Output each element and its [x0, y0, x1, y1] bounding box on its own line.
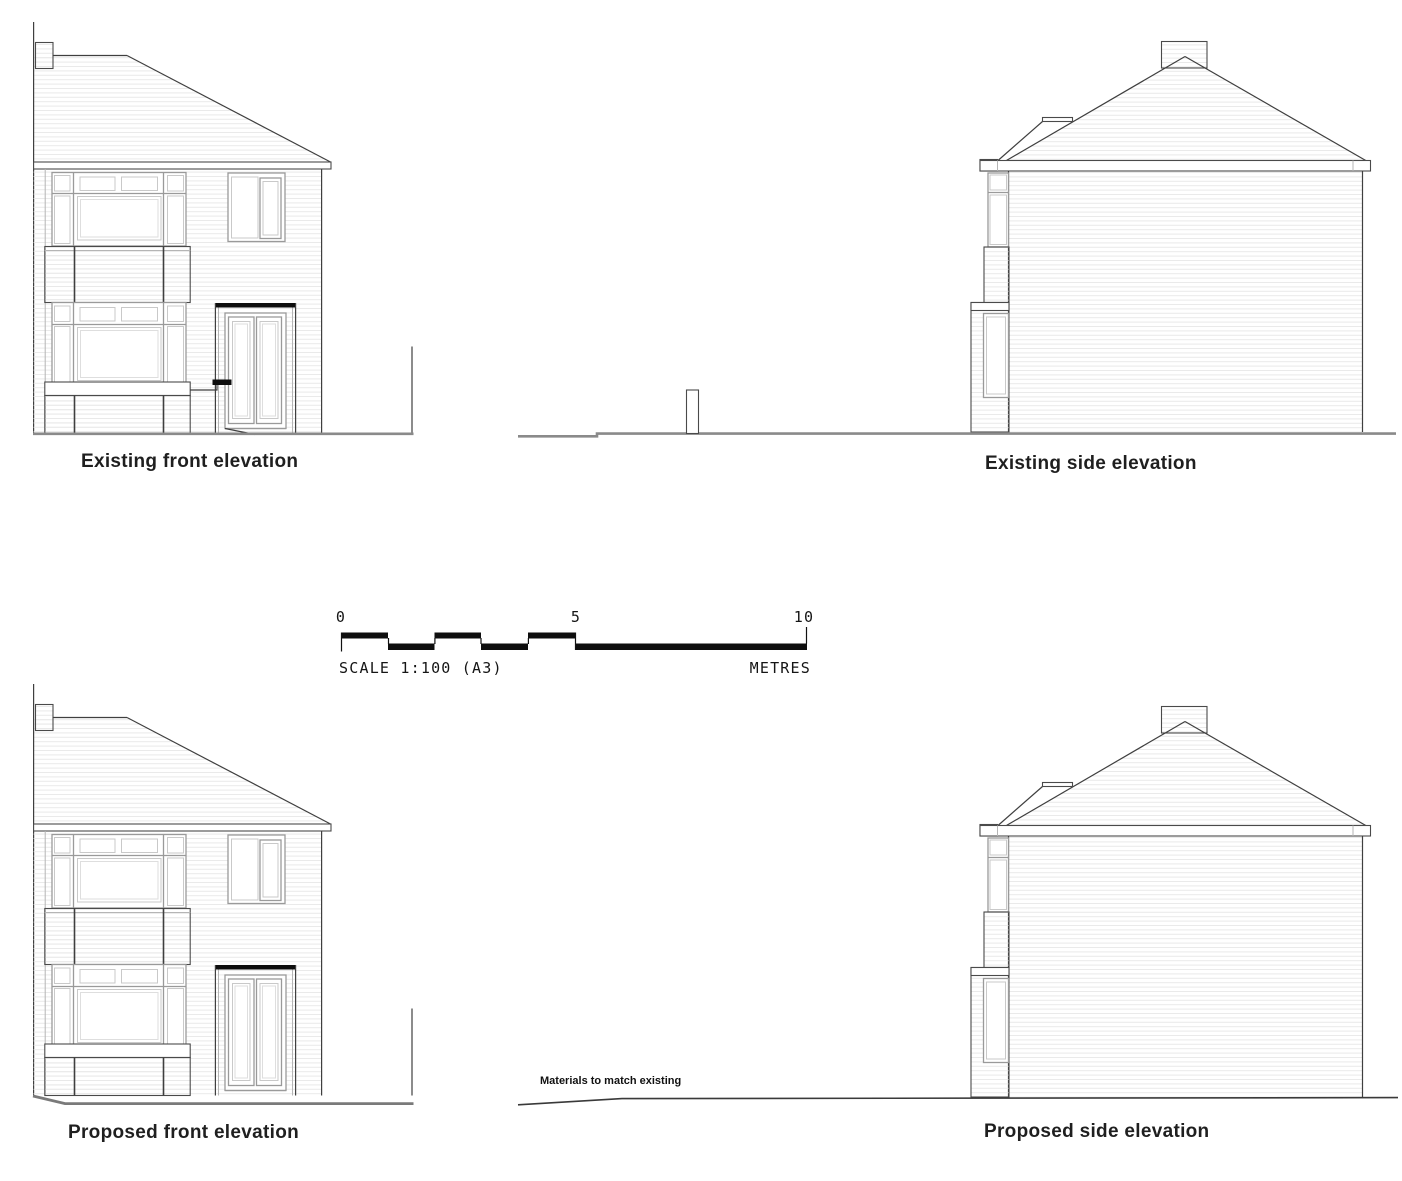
scale-tick-0-label: 0 — [336, 608, 346, 626]
scale-tick-10-label: 10 — [794, 608, 814, 626]
scale-segment-top — [341, 633, 388, 639]
proposed-side-house-drawing — [971, 707, 1371, 1098]
scale-segment-top — [528, 633, 575, 639]
proposed-side-elevation-label: Proposed side elevation — [984, 1121, 1209, 1142]
proposed-front-house-drawing — [34, 684, 412, 1096]
drawing-sheet: Existing front elevation Existing side e… — [0, 0, 1402, 1181]
proposed-front-elevation-label: Proposed front elevation — [68, 1122, 299, 1143]
existing-front-house-drawing — [34, 22, 412, 434]
step-ledge — [213, 380, 232, 386]
materials-note: Materials to match existing — [540, 1075, 681, 1087]
elevations-svg: Existing front elevation Existing side e… — [0, 0, 1402, 1181]
scale-bar: 0 5 10 SCALE 1:100 (A3) METRES — [336, 608, 814, 677]
scale-segment-bottom — [388, 644, 435, 651]
scale-segment-bottom — [481, 644, 528, 651]
ground-line — [518, 434, 1396, 437]
scale-tick-5-label: 5 — [571, 608, 581, 626]
fence-post — [687, 390, 699, 434]
ground-line — [518, 1098, 1398, 1105]
existing-front-elevation: Existing front elevation — [33, 22, 414, 472]
scale-text: SCALE 1:100 (A3) — [339, 659, 503, 677]
existing-front-elevation-label: Existing front elevation — [81, 451, 298, 472]
scale-segment-top — [435, 633, 482, 639]
scale-units-label: METRES — [750, 659, 811, 677]
existing-side-elevation: Existing side elevation — [518, 42, 1396, 475]
existing-side-elevation-label: Existing side elevation — [985, 453, 1197, 474]
existing-side-house-drawing — [971, 42, 1371, 433]
scale-segment-bottom — [575, 644, 807, 651]
proposed-front-elevation: Proposed front elevation — [33, 684, 414, 1143]
ground-line — [33, 1096, 414, 1104]
proposed-side-elevation: Materials to match existing Proposed sid… — [518, 707, 1398, 1143]
